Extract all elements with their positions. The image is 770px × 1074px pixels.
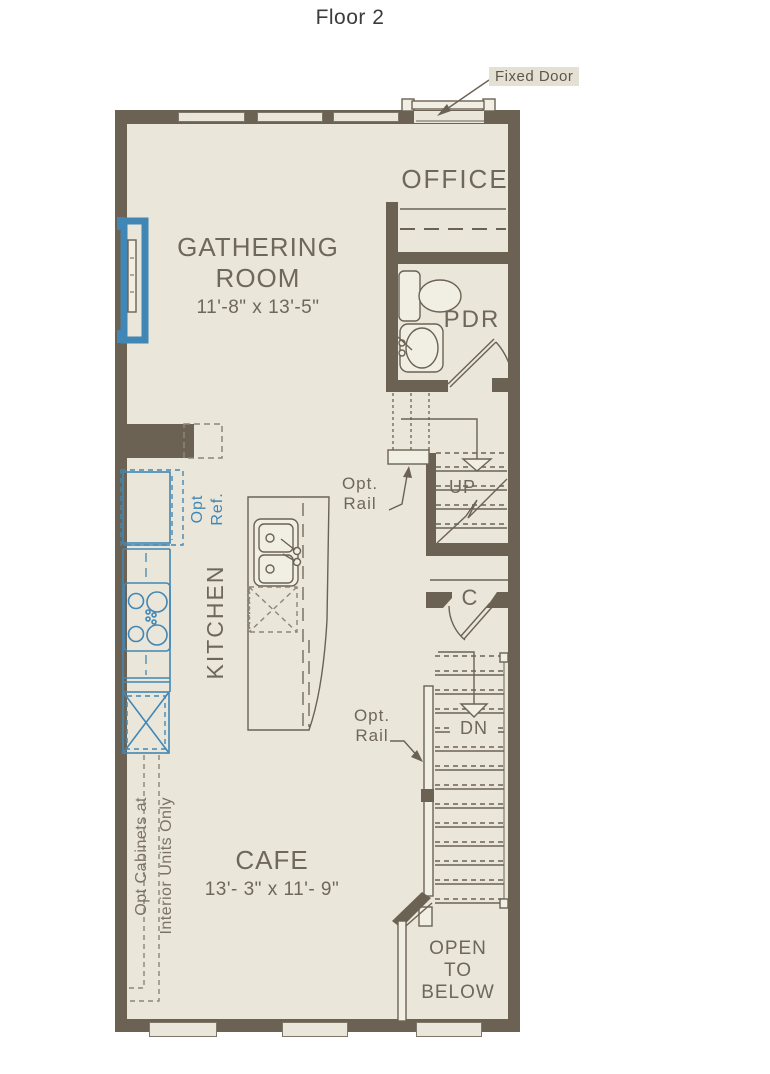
dn-rail [419, 686, 434, 926]
fixed-door-label: Fixed Door [489, 67, 579, 86]
opt-rail-upper-leader [389, 466, 412, 510]
dn-stairs [435, 652, 508, 908]
landing-railing [388, 393, 429, 464]
opt-ref-line1: Opt [188, 469, 208, 549]
cafe-name: CAFE [182, 845, 362, 876]
opt-ref-line2: Ref. [208, 469, 228, 549]
room-label-cafe: CAFE 13'- 3" x 11'- 9" [182, 845, 362, 902]
opt-cabinets-line2: Interior Units Only [154, 797, 179, 1011]
opt-rail-line2: Rail [342, 726, 402, 746]
open-below-line2: TO [408, 960, 508, 982]
island-sink-icon [254, 519, 301, 586]
gathering-line2: ROOM [168, 263, 348, 294]
opt-rail-upper-label: Opt. Rail [330, 474, 390, 515]
pdr-door-swing [448, 339, 513, 387]
kitchen-island [248, 497, 329, 730]
office-desk [400, 209, 506, 229]
room-label-pdr: PDR [432, 306, 512, 335]
open-to-below-label: OPEN TO BELOW [408, 938, 508, 1004]
opt-rail-line2: Rail [330, 494, 390, 514]
opt-rail-line1: Opt. [342, 706, 402, 726]
opt-ref-label: Opt Ref. [188, 469, 230, 549]
cafe-dims: 13'- 3" x 11'- 9" [182, 879, 362, 902]
opt-cabinets-note: Opt Cabinets at Interior Units Only [129, 797, 182, 1011]
fixed-door-leader [437, 80, 489, 116]
room-label-kitchen: KITCHEN [197, 542, 233, 702]
plan-linework [0, 0, 770, 1074]
closet-label: C [450, 585, 490, 611]
stairs-up-label: UP [440, 477, 485, 499]
opt-rail-line1: Opt. [330, 474, 390, 494]
floor-plan-canvas: Floor 2 [0, 0, 770, 1074]
open-below-line1: OPEN [408, 938, 508, 960]
room-label-office: OFFICE [395, 164, 515, 195]
refrigerator-icon [121, 470, 183, 545]
dishwasher-icon [249, 587, 297, 632]
stairs-dn-label: DN [450, 718, 498, 740]
opt-cabinets-line1: Opt Cabinets at [129, 797, 154, 1011]
media-unit [117, 217, 145, 343]
opt-cabinet-box [123, 692, 169, 753]
gathering-dims: 11'-8" x 13'-5" [168, 297, 348, 320]
opt-rail-lower-label: Opt. Rail [342, 706, 402, 747]
room-label-gathering: GATHERING ROOM 11'-8" x 13'-5" [168, 232, 348, 320]
gathering-line1: GATHERING [168, 232, 348, 263]
pantry-box [184, 424, 222, 458]
cooktop-icon [124, 583, 170, 651]
open-below-line3: BELOW [408, 982, 508, 1004]
